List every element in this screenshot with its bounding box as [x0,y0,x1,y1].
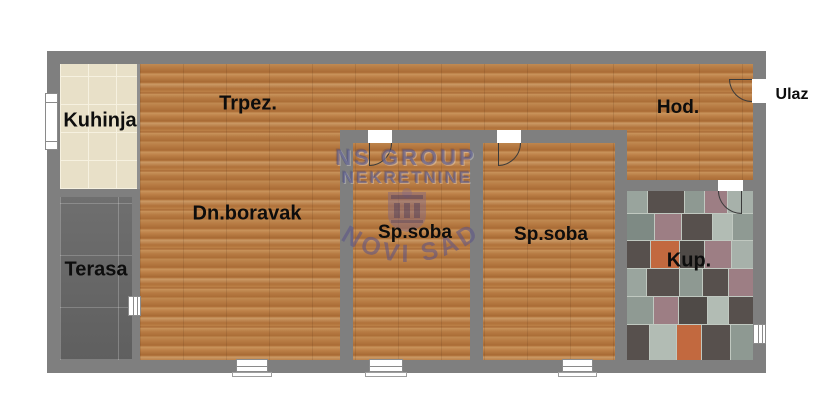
window-bedroom2-sill [558,372,597,377]
window-living-bottom [236,359,268,372]
kitchen-edge-seam [137,64,140,197]
terrace-door-window [128,296,141,316]
room-label-bedroom2: Sp.soba [514,224,588,246]
bedroom2-door-opening [497,130,521,143]
room-label-entrance: Ulaz [776,86,809,104]
room-label-dining: Trpez. [219,93,277,116]
entrance-door-opening [752,79,766,103]
floor-plan: NS GROUP NEKRETNINE NOVI SAD Kuhinja Trp… [0,0,814,420]
wall-bedrooms-divider [470,130,483,360]
window-bedroom1-sill [365,372,407,377]
wall-kitchen-terrace [60,189,140,197]
room-label-bathroom: Kup. [667,250,711,273]
wall-bedroom1-left [340,130,353,360]
bathroom-door-opening [718,180,743,191]
room-label-terrace: Terasa [64,259,127,282]
wall-terrace-living [132,197,140,360]
window-bedroom1-bottom [369,359,403,372]
window-bedroom2-bottom [562,359,593,372]
window-living-sill [232,372,272,377]
kitchen-window [45,93,58,150]
bathroom-window [753,324,766,344]
room-label-bedroom1: Sp.soba [378,222,452,244]
room-label-living: Dn.boravak [193,203,302,226]
room-label-kitchen: Kuhinja [63,110,136,133]
wall-outer-top [47,51,766,64]
bedroom1-door-opening [368,130,392,143]
room-label-hallway: Hod. [657,97,699,119]
wall-bathroom-left [615,130,627,360]
bathroom-mosaic-floor [627,191,753,360]
